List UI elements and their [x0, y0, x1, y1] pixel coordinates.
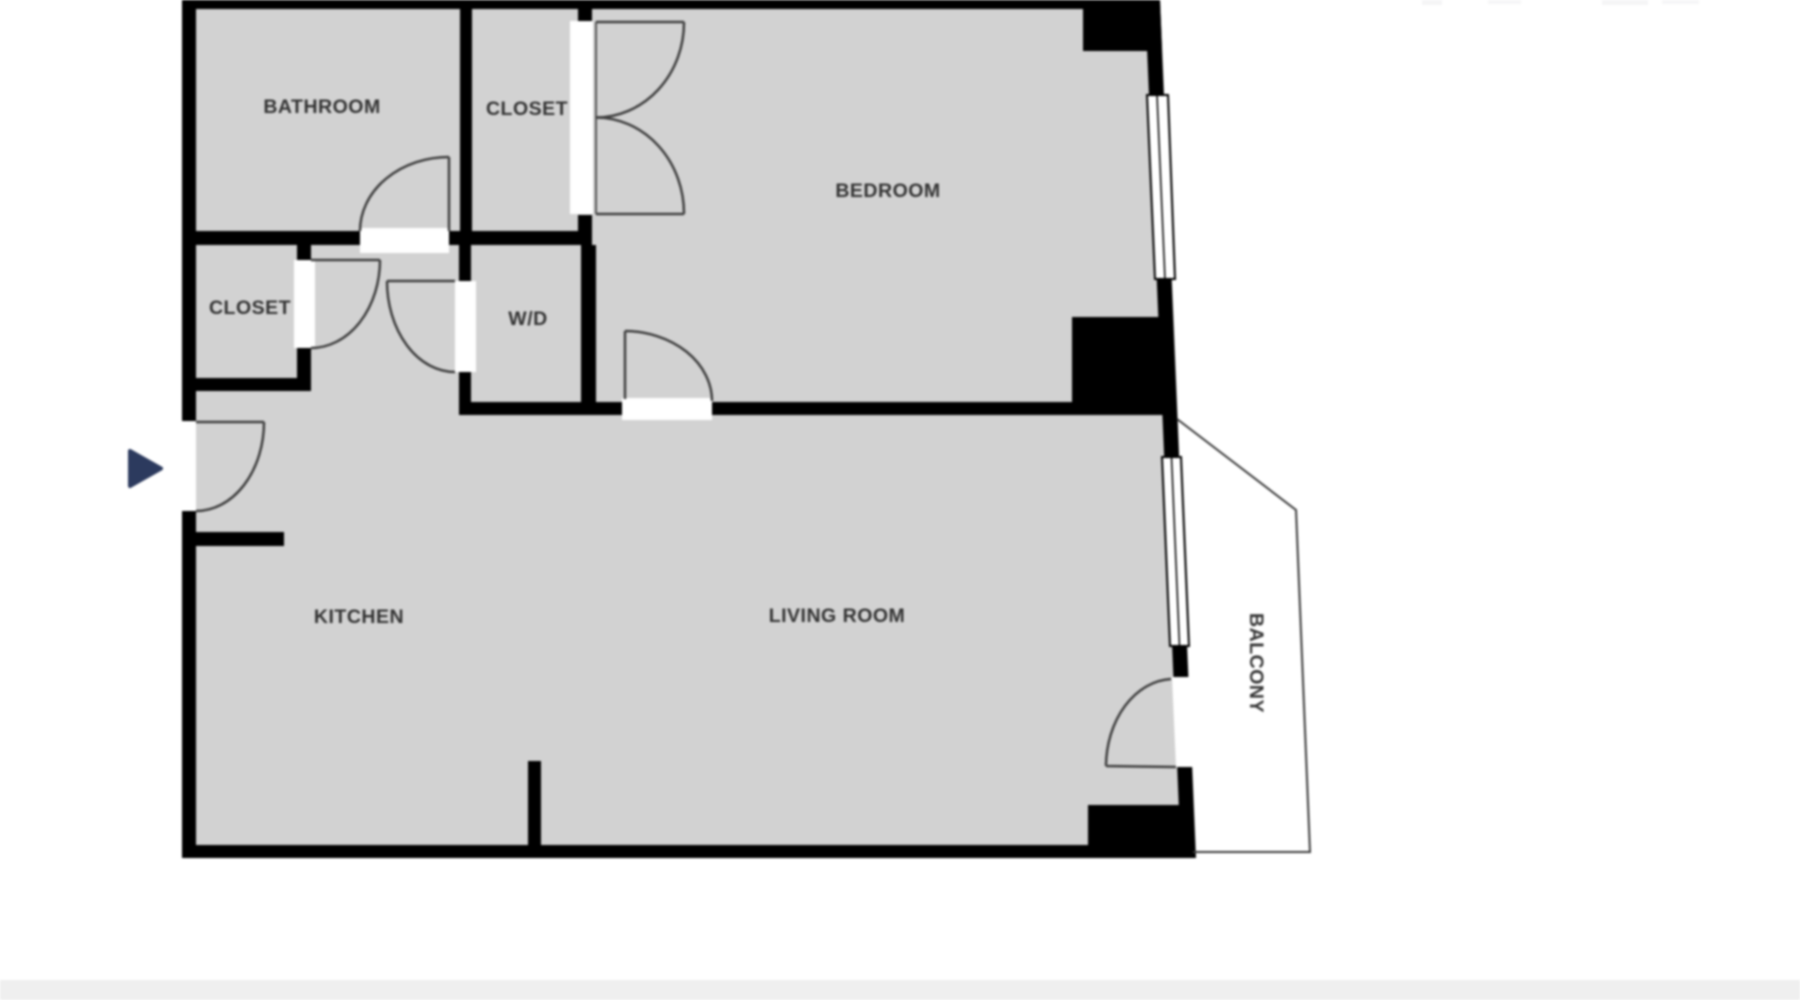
svg-text:BATHROOM: BATHROOM — [263, 96, 380, 118]
svg-text:CLOSET: CLOSET — [486, 98, 568, 120]
svg-text:KITCHEN: KITCHEN — [314, 606, 404, 628]
svg-text:BEDROOM: BEDROOM — [835, 180, 940, 202]
svg-text:CLOSET: CLOSET — [209, 297, 291, 319]
svg-text:W/D: W/D — [508, 308, 547, 330]
svg-text:BALCONY: BALCONY — [1245, 613, 1267, 713]
svg-text:LIVING ROOM: LIVING ROOM — [769, 605, 906, 627]
